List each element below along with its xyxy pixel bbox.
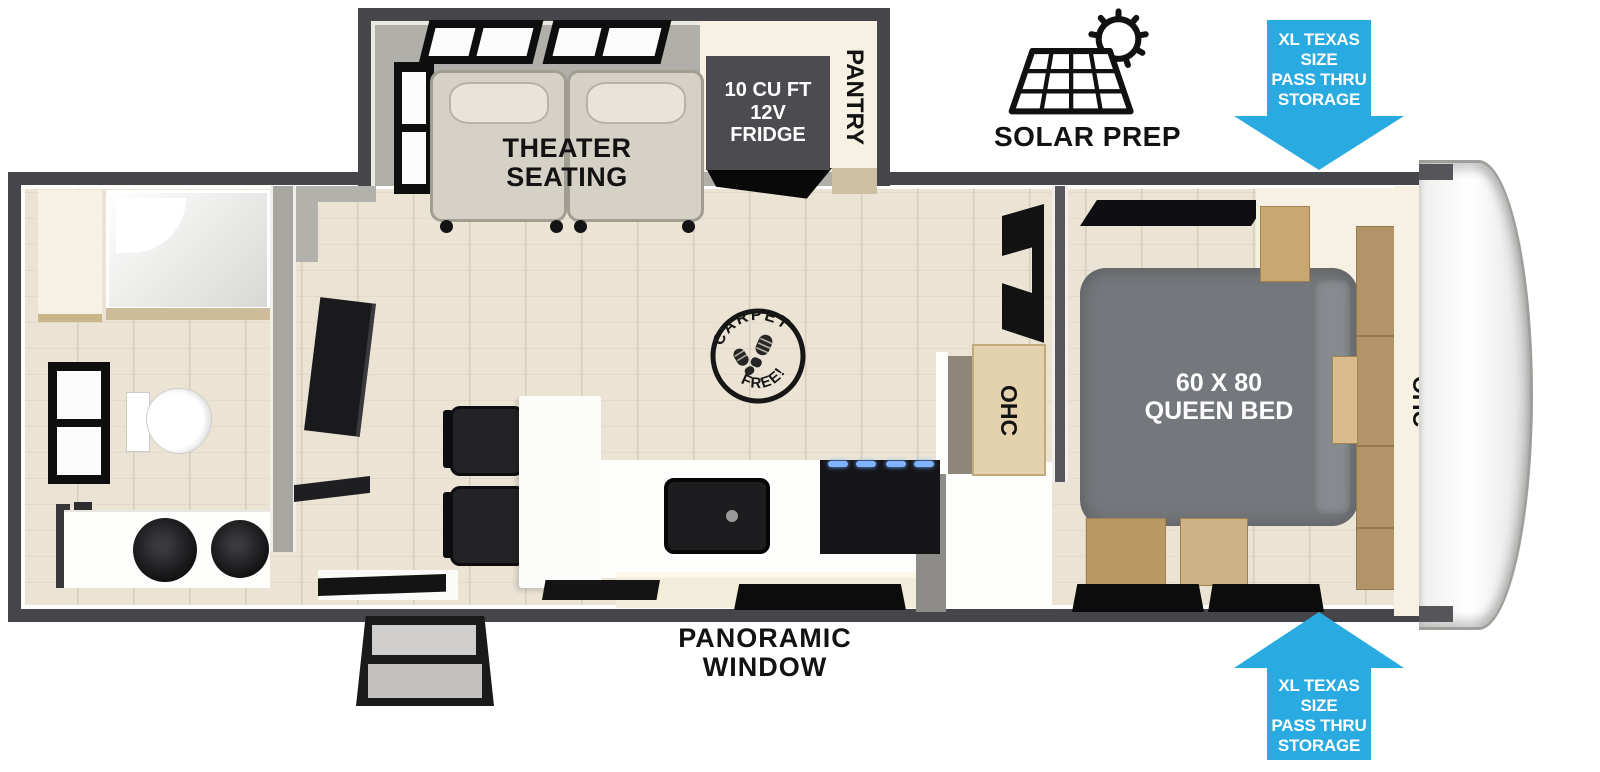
seat-foot — [682, 220, 695, 233]
bedroom-cabinet — [1180, 518, 1248, 586]
solar-prep-label: SOLAR PREP — [975, 122, 1200, 152]
panoramic-label-line: PANORAMIC — [678, 624, 852, 653]
pass-thru-label: PASS THRU — [1267, 716, 1371, 736]
fridge-label: 12V — [750, 102, 786, 124]
arrow-body: XL TEXAS SIZE PASS THRU STORAGE — [1267, 20, 1371, 116]
theater-label: THEATER — [430, 134, 704, 163]
cap-trim — [1419, 606, 1453, 622]
solar-panel-icon — [1000, 8, 1175, 120]
kitchen-window — [542, 580, 660, 600]
faucet — [726, 510, 738, 522]
pantry-base — [832, 168, 877, 194]
pass-thru-label: STORAGE — [1267, 90, 1371, 110]
dinette-table — [519, 396, 601, 588]
pantry: PANTRY — [830, 24, 877, 170]
solar-prep-badge: SOLAR PREP — [975, 8, 1200, 163]
step-tread — [372, 625, 476, 655]
theater-label: SEATING — [430, 163, 704, 192]
floorplan-canvas: OHC 60 X 80 QUEEN BED OHC — [0, 0, 1600, 772]
seat-foot — [574, 220, 587, 233]
chair-armrest — [443, 410, 453, 468]
kitchen-sink — [664, 478, 770, 554]
burner-flame — [914, 461, 934, 467]
burner-flame — [828, 461, 848, 467]
step-tread — [368, 664, 482, 698]
stove — [820, 460, 940, 554]
seat-headrest — [449, 82, 549, 124]
arrow-point-down-icon — [1234, 116, 1404, 170]
bathroom-window — [48, 362, 110, 484]
pass-thru-label: STORAGE — [1267, 736, 1371, 756]
shower-threshold — [106, 308, 270, 320]
seat-headrest — [586, 82, 686, 124]
dinette-chair — [450, 486, 526, 566]
slide-window — [419, 20, 544, 64]
seat-foot — [550, 220, 563, 233]
bed-size-label: 60 X 80 — [1176, 369, 1262, 397]
hall-ohc-label: OHC — [996, 384, 1023, 435]
bedroom-tv — [1080, 200, 1268, 226]
pass-thru-label: XL TEXAS SIZE — [1267, 676, 1371, 716]
bed-nightstand — [1332, 356, 1358, 444]
panoramic-label-line: WINDOW — [703, 653, 827, 682]
wall-face — [296, 186, 318, 262]
fridge-label: 10 CU FT — [725, 79, 812, 101]
pass-thru-arrow-top: XL TEXAS SIZE PASS THRU STORAGE — [1234, 20, 1404, 170]
wardrobe — [1356, 226, 1398, 590]
bathroom-wall — [270, 186, 296, 552]
slide-side-window — [394, 62, 434, 194]
vanity-sink — [211, 520, 269, 578]
bed-label: QUEEN BED — [1145, 397, 1294, 425]
fridge: 10 CU FT 12V FRIDGE — [706, 56, 830, 170]
bedroom-cabinet — [1260, 206, 1310, 282]
pantry-label: PANTRY — [840, 49, 868, 145]
shower-seat — [116, 198, 186, 253]
bedroom-cabinet — [1086, 518, 1166, 586]
wardrobe-divider — [1357, 527, 1397, 529]
hall-cabinet — [948, 356, 972, 474]
vanity-sink — [133, 518, 197, 582]
wardrobe-divider — [1357, 445, 1397, 447]
shower — [106, 190, 270, 310]
panoramic-window — [734, 584, 906, 610]
hall-counter-edge — [936, 352, 948, 474]
hall-overhead-cabinet: OHC — [972, 344, 1046, 476]
theater-seating: THEATER SEATING — [430, 70, 704, 238]
pass-thru-arrow-bottom: XL TEXAS SIZE PASS THRU STORAGE — [1234, 612, 1404, 760]
pass-thru-label: XL TEXAS SIZE — [1267, 30, 1371, 70]
bathroom-overhead-cabinet — [38, 190, 102, 322]
burner-flame — [886, 461, 906, 467]
arrow-point-up-icon — [1234, 612, 1404, 668]
bedroom-window — [1072, 584, 1204, 612]
dinette-chair — [450, 406, 524, 476]
arrow-body: XL TEXAS SIZE PASS THRU STORAGE — [1267, 668, 1371, 760]
fridge-label: FRIDGE — [730, 124, 806, 146]
hall-wall — [946, 462, 1052, 609]
bedroom-wall — [1052, 186, 1068, 482]
wardrobe-divider — [1357, 335, 1397, 337]
burner-flame — [856, 461, 876, 467]
slide-window — [543, 20, 672, 64]
chair-armrest — [443, 492, 453, 558]
entry-steps — [356, 616, 494, 706]
cap-trim — [1419, 164, 1453, 180]
bedroom-window — [1208, 584, 1324, 612]
panoramic-window-label: PANORAMIC WINDOW — [630, 618, 900, 688]
pass-thru-label: PASS THRU — [1267, 70, 1371, 90]
seat-foot — [440, 220, 453, 233]
front-cap — [1419, 160, 1533, 630]
